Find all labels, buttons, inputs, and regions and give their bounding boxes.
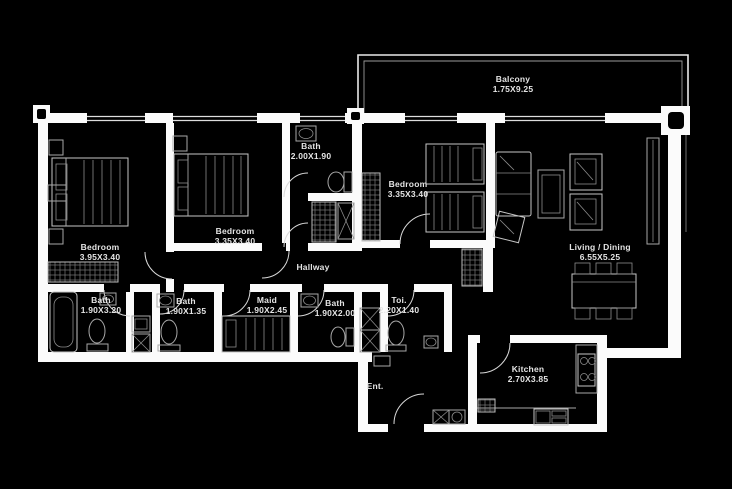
living-furniture: [493, 138, 659, 319]
room-label-ent: Ent.: [367, 381, 384, 391]
room-label-bath-2: Bath1.90X1.35: [166, 296, 207, 316]
room-label-maid: Maid1.90X2.45: [247, 295, 288, 315]
entrance-details: [374, 356, 465, 424]
bedroom2-furniture: [173, 136, 248, 216]
kitchen-fixtures: [477, 345, 597, 425]
floor-plan: Balcony1.75X9.25 Bedroom3.95X3.40 Bedroo…: [0, 0, 732, 489]
maid-furniture: [222, 316, 290, 352]
room-label-balcony: Balcony1.75X9.25: [493, 74, 534, 94]
room-label-kitchen: Kitchen2.70X3.85: [508, 364, 549, 384]
toi-fixtures: [386, 321, 438, 351]
room-label-bedroom-2: Bedroom3.35X3.40: [215, 226, 256, 246]
room-label-hallway: Hallway: [296, 262, 329, 272]
room-label-living-dining: Living / Dining6.55X5.25: [569, 242, 631, 262]
room-label-bedroom-3: Bedroom3.35X3.40: [388, 179, 429, 199]
room-label-toi: Toi.2.20X1.40: [379, 295, 420, 315]
room-label-bedroom-1: Bedroom3.95X3.40: [80, 242, 121, 262]
bedroom1-furniture: [48, 140, 128, 244]
room-label-bath-top: Bath2.00X1.90: [291, 141, 332, 161]
room-label-bath-1: Bath1.90X3.20: [81, 295, 122, 315]
bedroom3-furniture: [426, 144, 484, 232]
room-label-bath-3: Bath1.90X2.00: [315, 298, 356, 318]
